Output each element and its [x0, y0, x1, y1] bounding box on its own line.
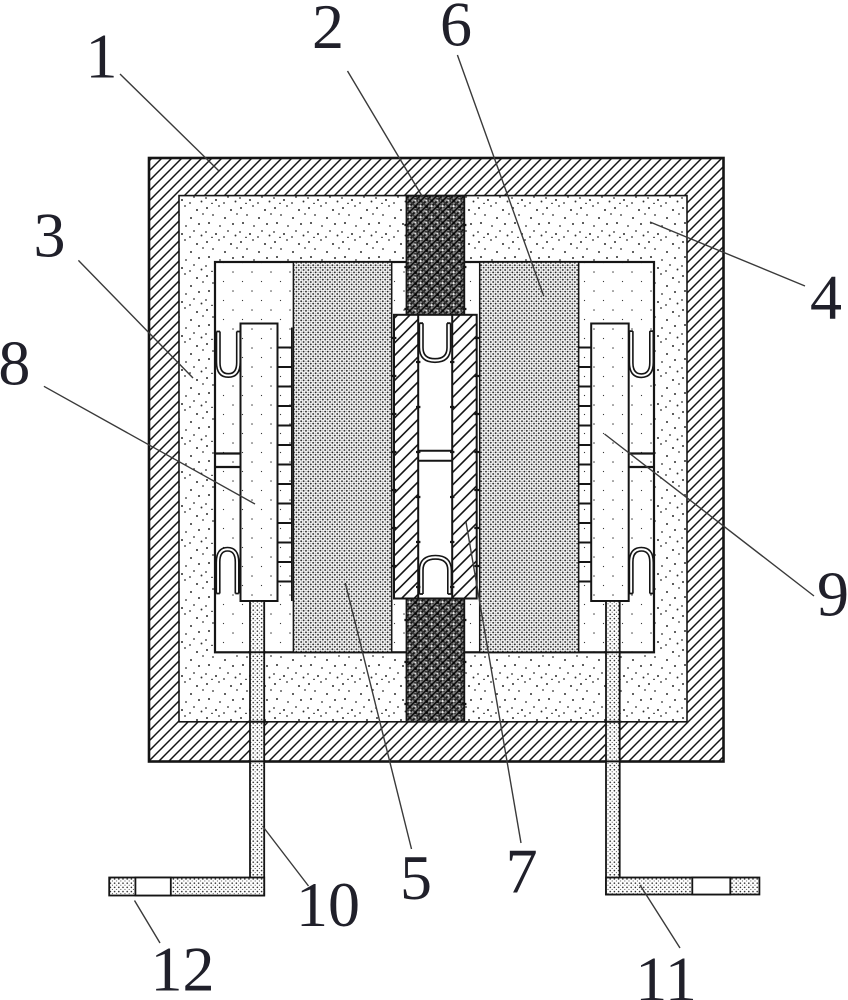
- svg-text:6: 6: [440, 0, 472, 60]
- svg-text:12: 12: [151, 934, 215, 1000]
- svg-text:11: 11: [635, 944, 697, 1000]
- svg-text:1: 1: [86, 21, 118, 92]
- svg-text:7: 7: [506, 836, 538, 907]
- svg-text:3: 3: [34, 200, 66, 271]
- svg-text:4: 4: [810, 262, 842, 333]
- svg-text:8: 8: [0, 328, 30, 399]
- svg-text:2: 2: [312, 0, 344, 62]
- svg-text:9: 9: [817, 559, 848, 630]
- svg-text:5: 5: [400, 842, 432, 913]
- svg-text:10: 10: [296, 869, 360, 940]
